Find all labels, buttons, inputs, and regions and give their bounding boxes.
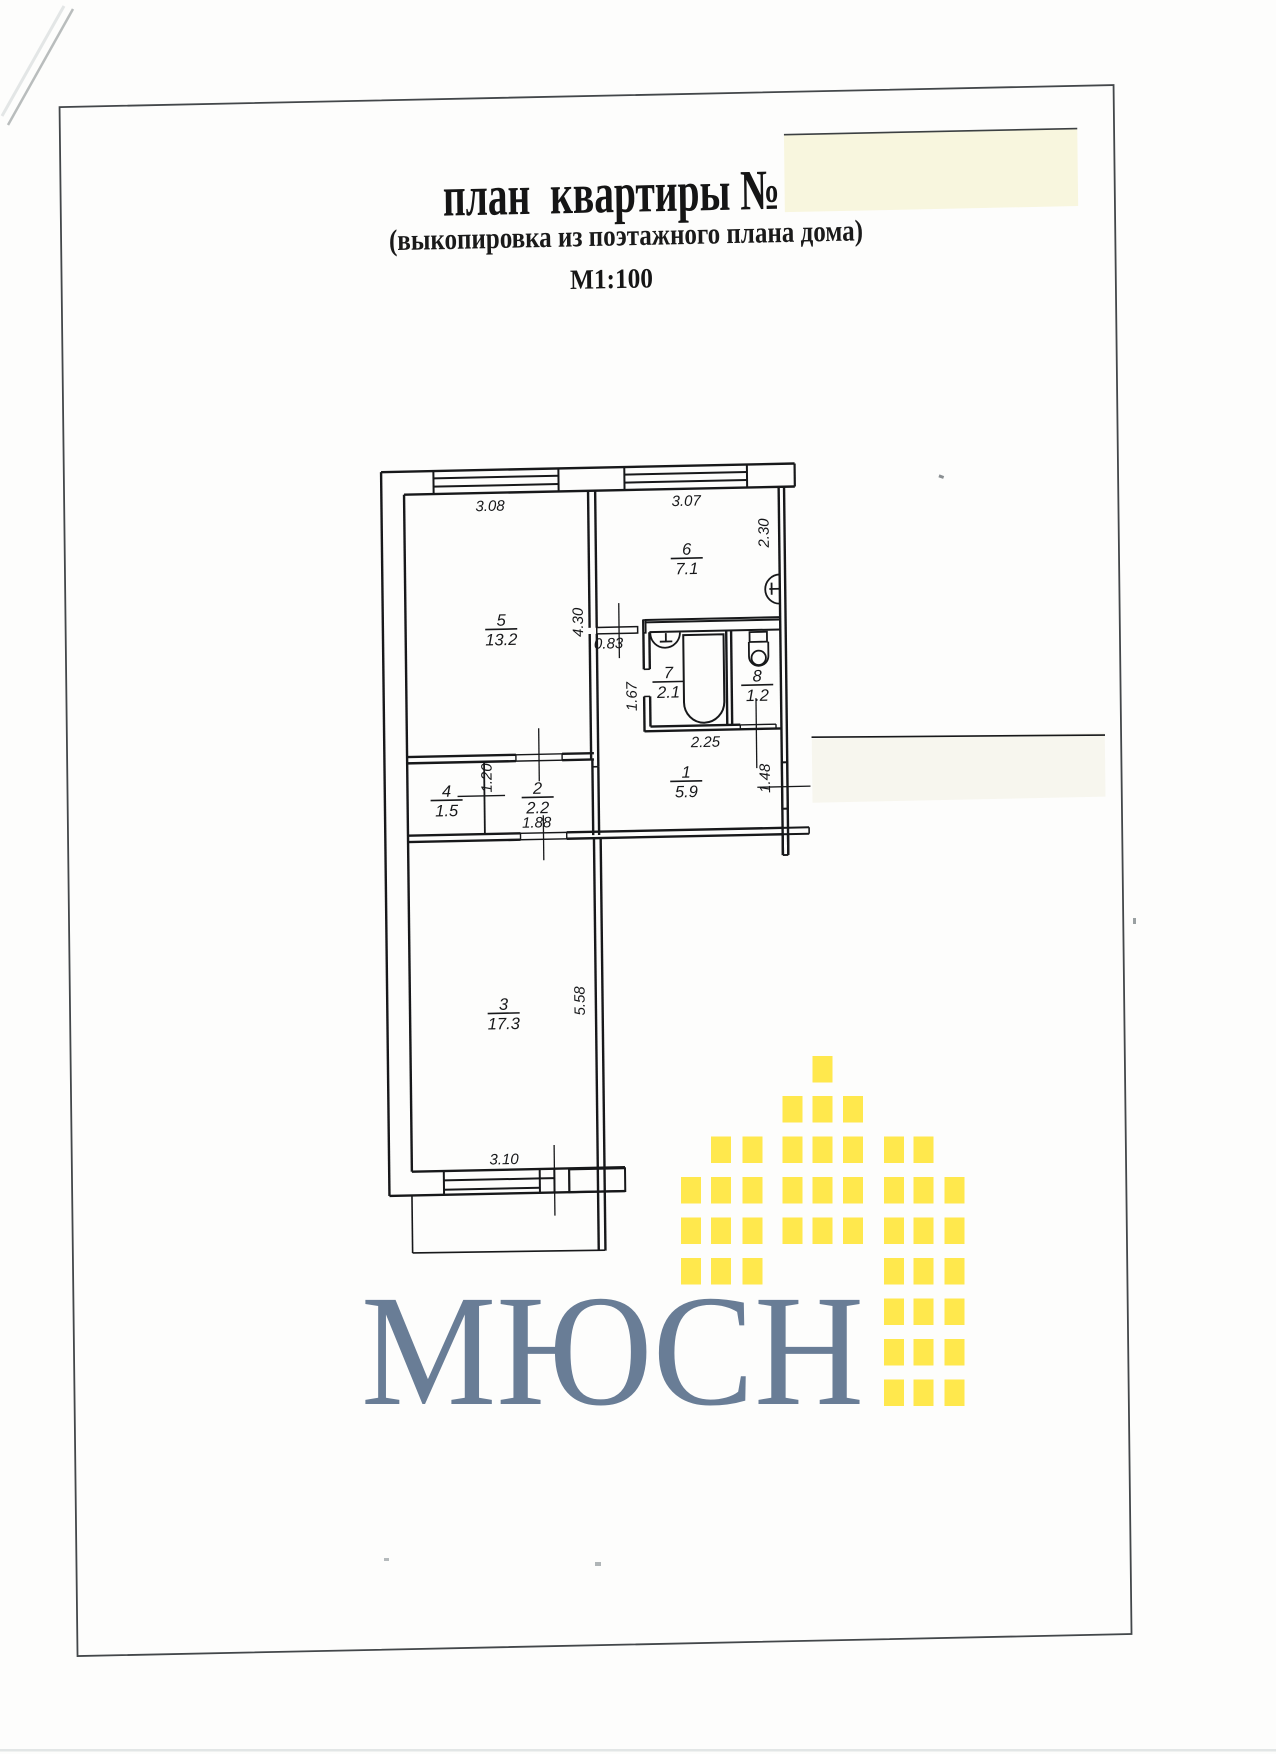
svg-text:2.25: 2.25 [690, 734, 721, 752]
svg-text:3.07: 3.07 [671, 492, 701, 510]
svg-text:1: 1 [681, 764, 690, 782]
svg-text:5: 5 [496, 612, 506, 630]
svg-text:17.3: 17.3 [488, 1015, 521, 1034]
svg-text:13.2: 13.2 [485, 631, 517, 650]
svg-text:2: 2 [532, 780, 542, 798]
svg-text:1.20: 1.20 [478, 763, 495, 793]
svg-text:1.48: 1.48 [757, 763, 774, 793]
svg-text:1.5: 1.5 [435, 802, 459, 820]
svg-text:3.08: 3.08 [475, 498, 505, 516]
svg-text:М1:100: М1:100 [570, 263, 653, 296]
svg-text:4.30: 4.30 [570, 607, 587, 637]
svg-text:МЮСН: МЮСН [361, 1263, 864, 1439]
svg-text:6: 6 [682, 541, 692, 559]
svg-text:0.83: 0.83 [594, 635, 624, 653]
svg-text:1.67: 1.67 [624, 681, 641, 711]
svg-text:4: 4 [442, 783, 451, 801]
svg-text:7: 7 [664, 664, 674, 682]
svg-text:2.30: 2.30 [755, 518, 772, 549]
svg-text:1.2: 1.2 [746, 687, 769, 705]
svg-text:2.1: 2.1 [656, 683, 680, 702]
svg-text:3.10: 3.10 [489, 1151, 519, 1169]
svg-text:5.58: 5.58 [571, 985, 588, 1015]
svg-text:5.9: 5.9 [675, 783, 698, 801]
svg-text:3: 3 [499, 996, 509, 1014]
svg-text:8: 8 [752, 667, 762, 685]
svg-text:2.2: 2.2 [525, 799, 549, 818]
svg-text:7.1: 7.1 [675, 560, 698, 578]
